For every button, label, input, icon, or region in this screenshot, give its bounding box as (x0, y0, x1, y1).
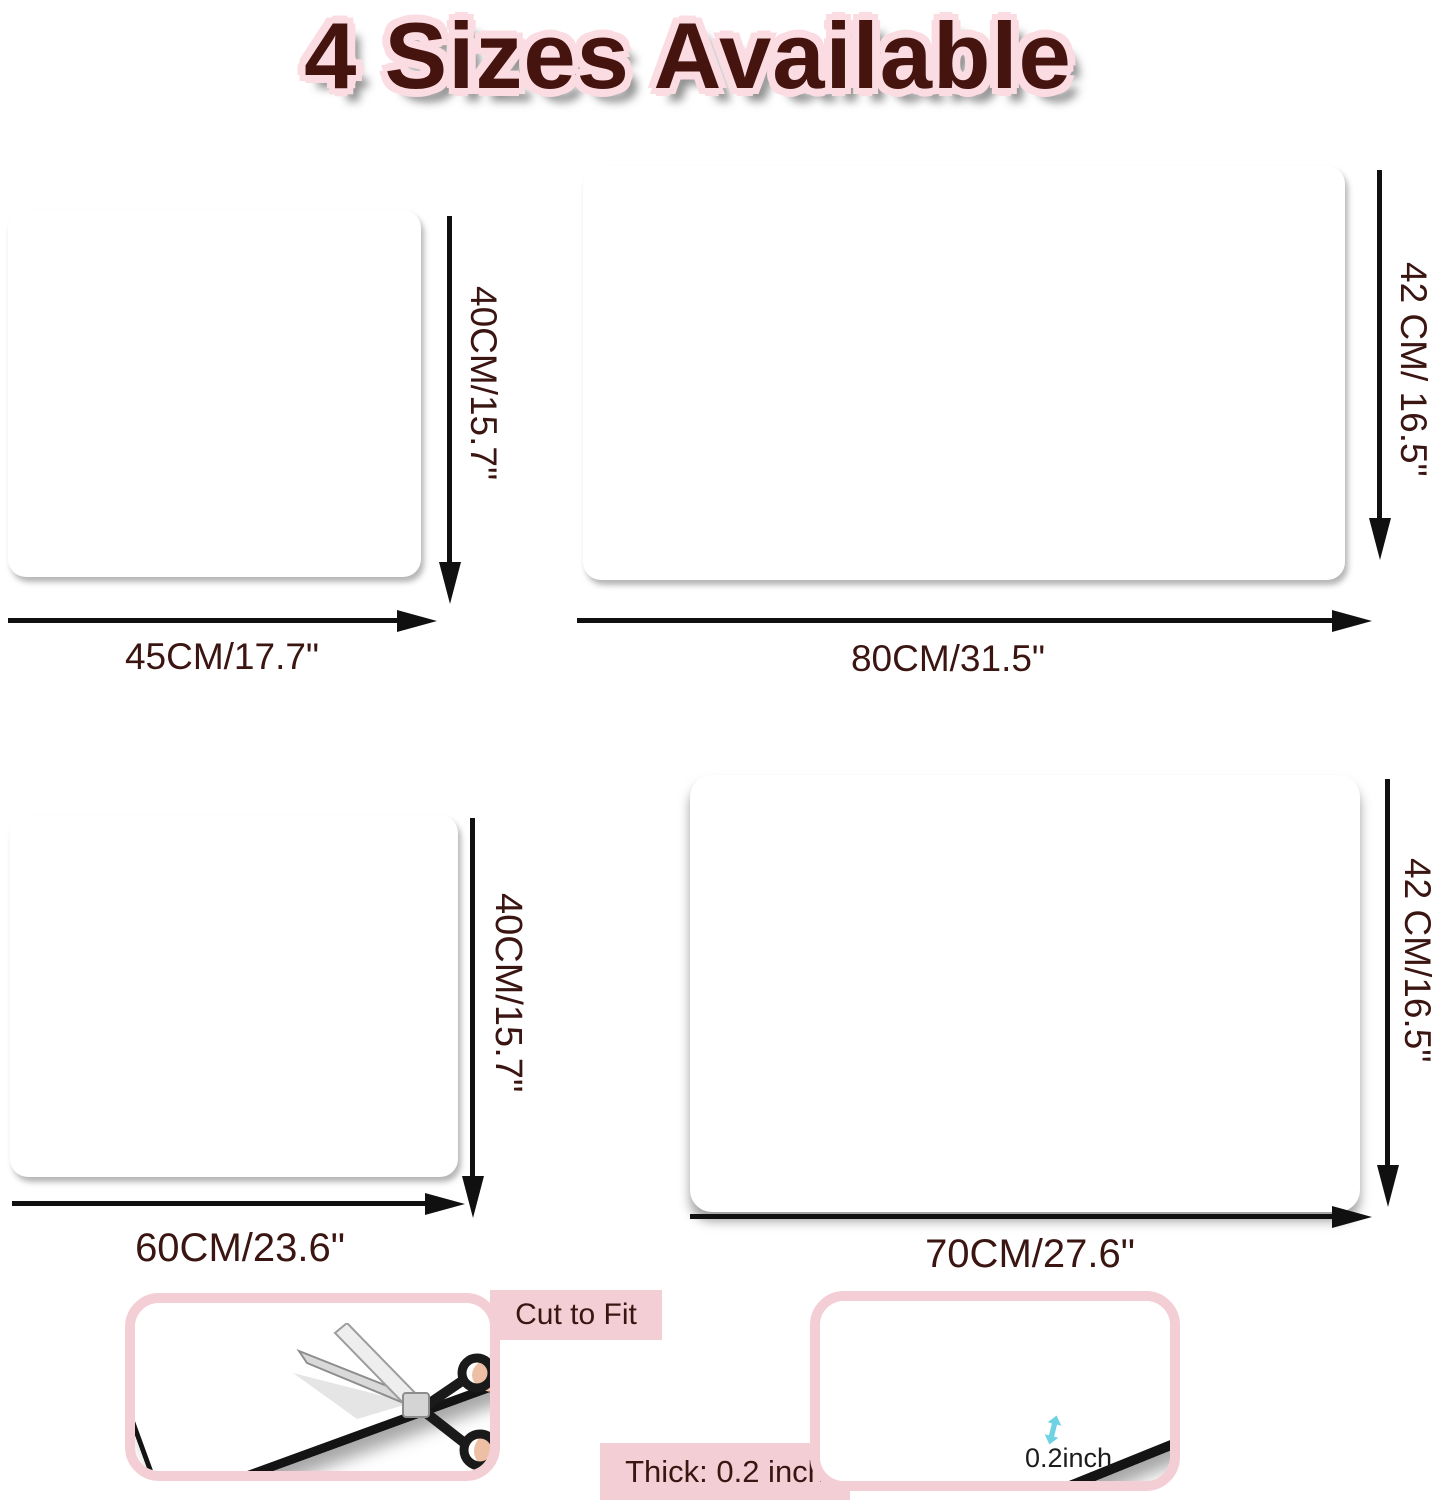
height-label-bottom-left: 40CM/15.7" (486, 893, 529, 1092)
mat-edge-diagonal (810, 1291, 1180, 1491)
width-label-top-left: 45CM/17.7" (62, 636, 382, 678)
width-label-bottom-left: 60CM/23.6" (80, 1226, 400, 1271)
thickness-value: 0.2inch (1025, 1443, 1112, 1474)
mat-top-left (8, 210, 421, 577)
cut-to-fit-image (125, 1293, 500, 1481)
scissors-icon (293, 1323, 500, 1481)
height-label-top-right: 42 CM/ 16.5" (1392, 262, 1434, 477)
height-arrow-top-right (1377, 170, 1382, 518)
mat-top-right (583, 166, 1345, 580)
width-label-top-right: 80CM/31.5" (788, 638, 1108, 680)
width-label-bottom-right: 70CM/27.6" (870, 1232, 1190, 1277)
mat-bottom-left (10, 815, 458, 1177)
width-arrow-top-left (8, 618, 397, 623)
width-arrow-bottom-right (690, 1214, 1332, 1219)
height-label-bottom-right: 42 CM/16.5" (1396, 858, 1436, 1062)
height-arrow-bottom-left (470, 818, 475, 1176)
width-arrow-top-right (577, 618, 1332, 623)
cut-to-fit-label: Cut to Fit (490, 1290, 662, 1340)
width-arrow-bottom-left (12, 1201, 425, 1206)
page-title: 4 Sizes Available (0, 2, 1406, 110)
height-arrow-bottom-right (1385, 779, 1390, 1165)
mat-bottom-right (690, 775, 1360, 1212)
thickness-image: 0.2inch (810, 1291, 1180, 1491)
product-size-infographic: 4 Sizes Available 40CM/15.7" 45CM/17.7" … (0, 0, 1436, 1500)
height-arrow-top-left (447, 216, 452, 562)
height-label-top-left: 40CM/15.7" (462, 286, 504, 480)
